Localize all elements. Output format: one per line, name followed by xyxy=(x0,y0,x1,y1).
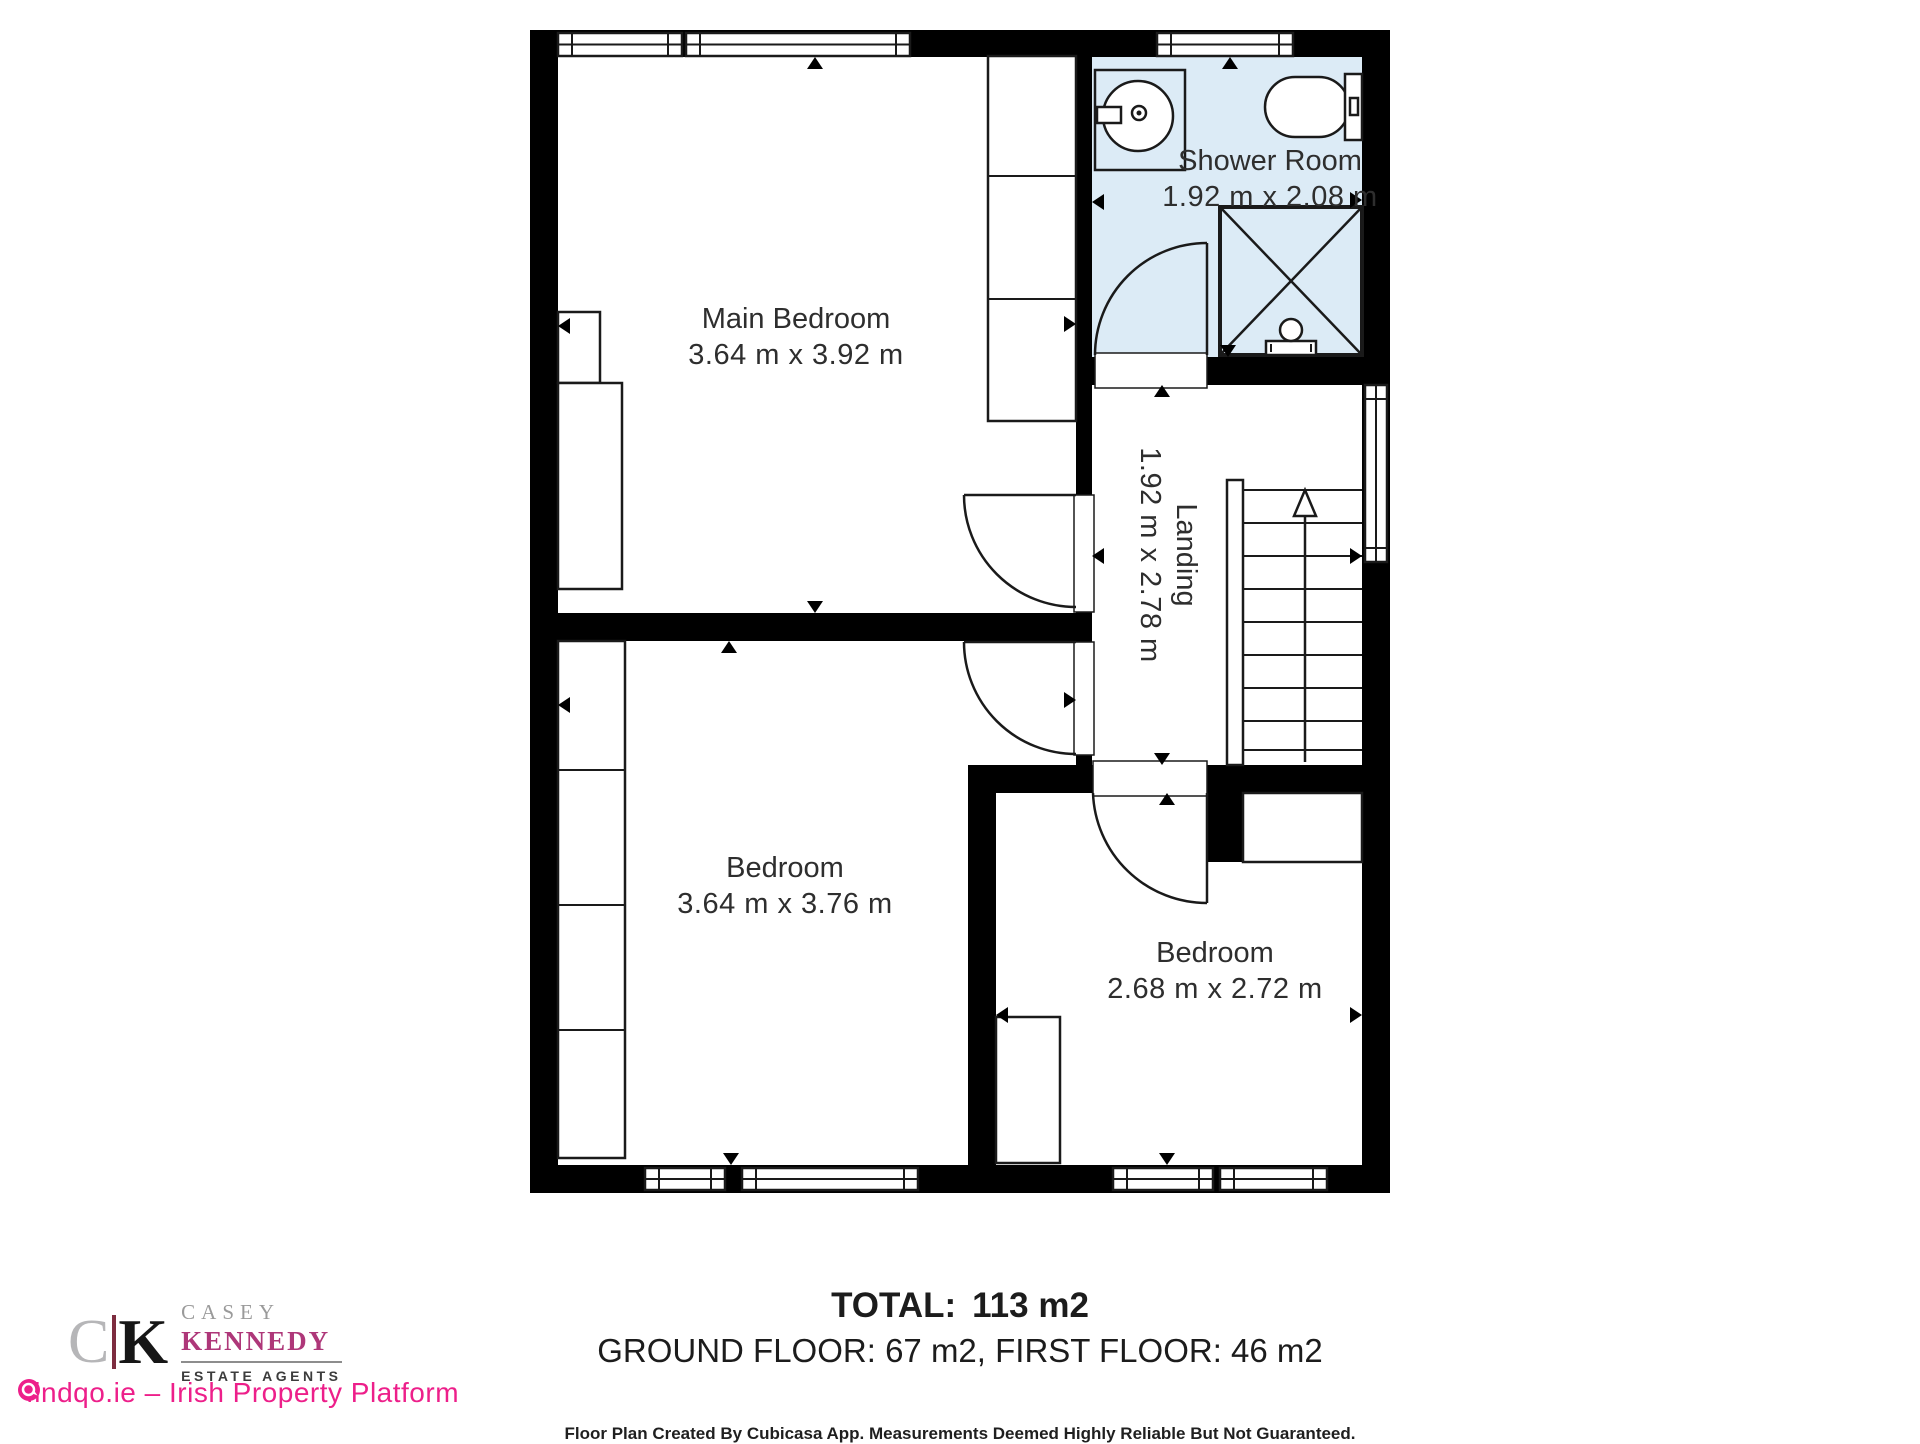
room-dimensions: 3.64 m x 3.92 m xyxy=(688,337,903,373)
room-label-bedroom-right: Bedroom 2.68 m x 2.72 m xyxy=(1107,935,1322,1007)
opening-bedroom-left xyxy=(1074,642,1094,755)
room-name: Bedroom xyxy=(677,850,892,886)
wardrobe-main-bedroom-right xyxy=(988,56,1076,421)
room-label-bedroom-left: Bedroom 3.64 m x 3.76 m xyxy=(677,850,892,922)
platform-label: findqo.ie – Irish Property Platform xyxy=(26,1377,459,1409)
wall-bedroom-divider xyxy=(558,613,1092,641)
wall-stub xyxy=(1207,765,1243,862)
opening-bedroom-right xyxy=(1093,761,1207,796)
room-name: Main Bedroom xyxy=(688,301,903,337)
disclaimer-text: Floor Plan Created By Cubicasa App. Meas… xyxy=(0,1424,1920,1444)
dimension-arrow xyxy=(721,641,737,653)
room-dimensions: 1.92 m x 2.08 m xyxy=(1162,179,1377,215)
agency-name-line1: CASEY xyxy=(181,1300,341,1325)
room-dimensions: 3.64 m x 3.76 m xyxy=(677,886,892,922)
opening-main-bedroom xyxy=(1074,495,1094,612)
dimension-arrow xyxy=(1350,1007,1362,1023)
total-value: 113 m2 xyxy=(972,1286,1089,1325)
agency-name-line2: KENNEDY xyxy=(181,1326,341,1363)
platform-brand: findqo.ie – Irish Property Platform xyxy=(16,1377,459,1409)
door-bedroom-right xyxy=(1093,793,1207,903)
monogram-k: K xyxy=(118,1310,168,1374)
wardrobe-bedroom-left-column xyxy=(558,641,625,1158)
stair-railing xyxy=(1227,480,1243,765)
wardrobe-main-bedroom-left-large xyxy=(558,383,622,589)
wardrobe-bedroom-right xyxy=(996,1017,1060,1163)
agency-logo: C K CASEY KENNEDY ESTATE AGENTS xyxy=(68,1300,342,1384)
room-label-landing: Landing 1.92 m x 2.78 m xyxy=(1132,447,1204,662)
room-name: Bedroom xyxy=(1107,935,1322,971)
door-main-bedroom xyxy=(964,495,1076,607)
dimension-arrow xyxy=(1159,1153,1175,1165)
wall-left xyxy=(530,30,558,1193)
closet-over-stairs xyxy=(1243,793,1362,862)
wall-inner-vertical-lower xyxy=(968,765,996,1193)
floor-plan-svg xyxy=(0,0,1920,1440)
staircase xyxy=(1227,480,1362,765)
monogram-c: C xyxy=(68,1311,109,1373)
total-label: TOTAL: xyxy=(831,1286,956,1325)
dimension-arrow xyxy=(1350,548,1362,564)
room-label-shower-room: Shower Room 1.92 m x 2.08 m xyxy=(1162,143,1377,215)
dimension-arrow xyxy=(807,601,823,613)
monogram-divider xyxy=(112,1315,116,1369)
dimension-arrow xyxy=(807,57,823,69)
room-dimensions: 1.92 m x 2.78 m xyxy=(1132,447,1168,662)
room-name: Landing xyxy=(1168,447,1204,662)
toilet-fixture xyxy=(1265,74,1362,140)
dimension-arrow xyxy=(723,1153,739,1165)
opening-shower xyxy=(1095,353,1207,388)
stairs-up-arrow-icon xyxy=(1294,490,1316,516)
room-dimensions: 2.68 m x 2.72 m xyxy=(1107,971,1322,1007)
room-name: Shower Room xyxy=(1162,143,1377,179)
findqo-globe-icon xyxy=(16,1377,42,1403)
agency-wordmark: CASEY KENNEDY ESTATE AGENTS xyxy=(181,1300,341,1384)
door-bedroom-left xyxy=(964,642,1076,754)
room-label-main-bedroom: Main Bedroom 3.64 m x 3.92 m xyxy=(688,301,903,373)
ck-monogram-icon: C K xyxy=(68,1310,168,1374)
